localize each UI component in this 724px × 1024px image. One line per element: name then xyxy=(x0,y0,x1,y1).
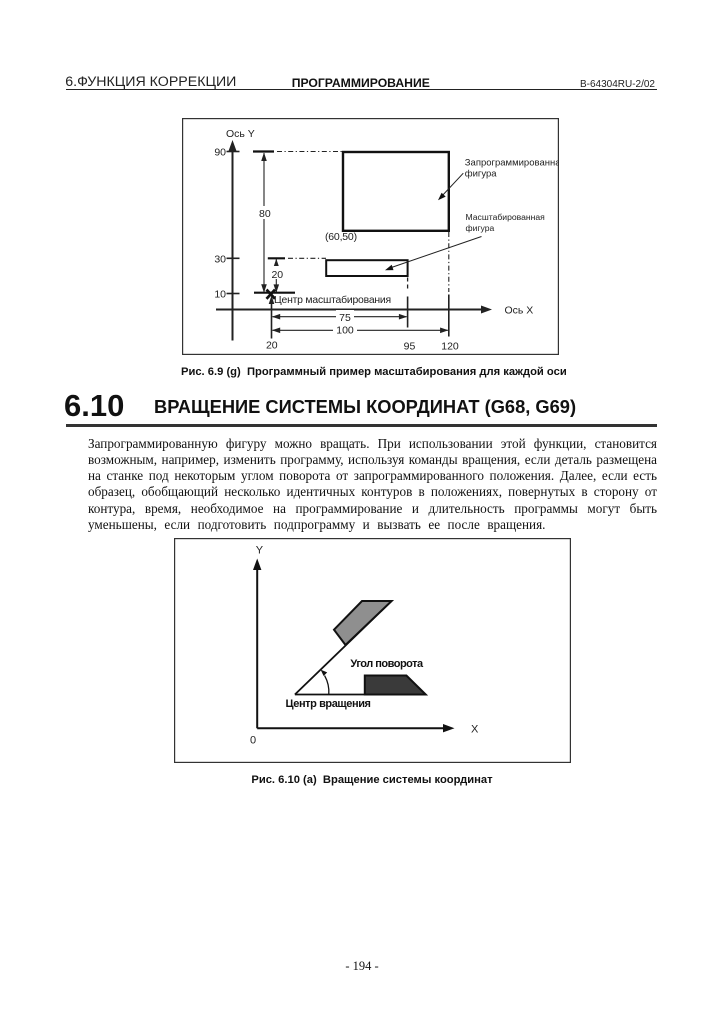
svg-text:Угол поворота: Угол поворота xyxy=(350,658,424,670)
svg-text:90: 90 xyxy=(214,147,226,159)
svg-text:0: 0 xyxy=(250,735,256,747)
svg-text:20: 20 xyxy=(266,339,278,351)
svg-text:95: 95 xyxy=(404,341,416,353)
svg-text:Y: Y xyxy=(256,545,264,557)
svg-text:Центр масштабирования: Центр масштабирования xyxy=(274,294,391,306)
svg-text:80: 80 xyxy=(259,208,271,220)
svg-text:Масштабированная: Масштабированная xyxy=(466,212,546,222)
svg-text:10: 10 xyxy=(214,289,226,301)
svg-text:100: 100 xyxy=(336,325,354,337)
svg-text:Ось Y: Ось Y xyxy=(226,128,255,140)
svg-text:фигура: фигура xyxy=(465,169,498,180)
svg-text:Запрограммированная: Запрограммированная xyxy=(465,157,559,168)
svg-text:75: 75 xyxy=(339,312,351,324)
svg-text:фигура: фигура xyxy=(466,223,495,233)
svg-text:30: 30 xyxy=(214,253,226,265)
svg-text:Центр вращения: Центр вращения xyxy=(286,698,371,710)
svg-text:Ось X: Ось X xyxy=(505,305,534,317)
svg-text:(60,50): (60,50) xyxy=(325,231,357,243)
svg-text:20: 20 xyxy=(271,269,283,281)
svg-text:120: 120 xyxy=(441,341,459,353)
svg-text:X: X xyxy=(471,724,479,736)
